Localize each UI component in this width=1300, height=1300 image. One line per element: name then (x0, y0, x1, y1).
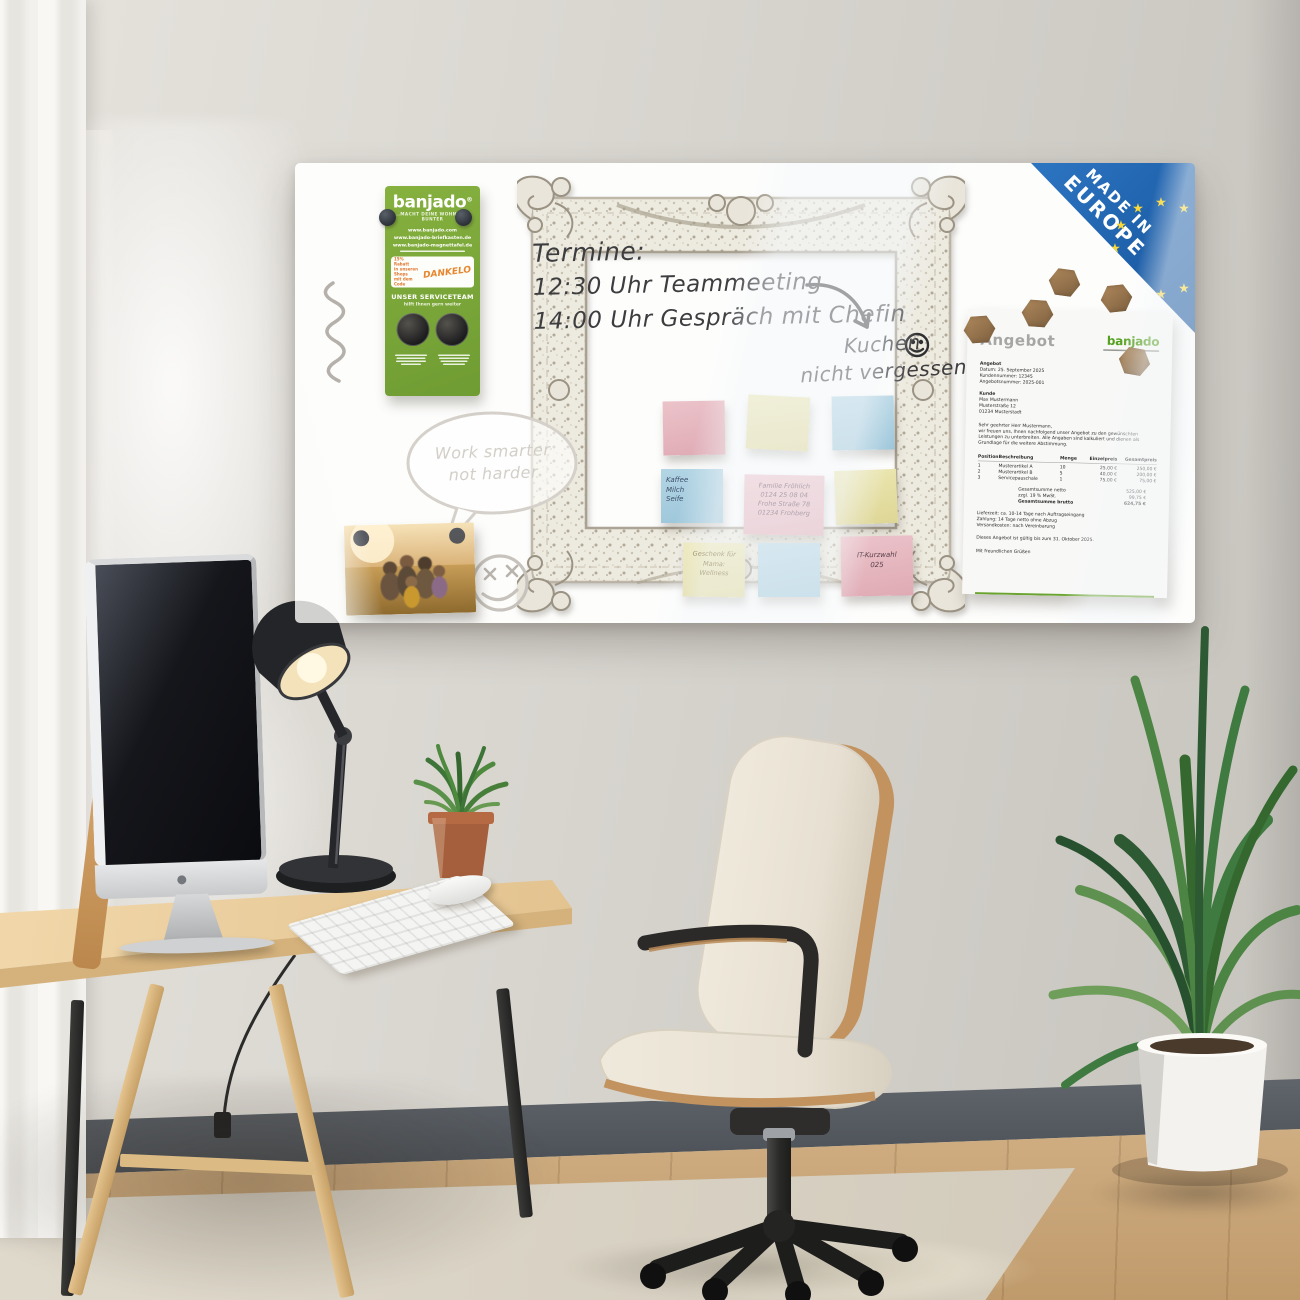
eu-star-icon: ★ (1132, 202, 1144, 217)
magnetic-glass-board: Termine: 12:30 Uhr Teammeeting 14:00 Uhr… (295, 163, 1195, 623)
sticky-note-blank (834, 469, 898, 525)
eu-star-icon: ★ (1178, 282, 1190, 297)
speech-bubble-text: Work smarter not harder (422, 439, 563, 488)
potted-plant-large (1005, 540, 1300, 1205)
badge-text: MADE IN EUROPE (1045, 163, 1179, 276)
fine-print-bar (400, 251, 465, 253)
document-validity: Dieses Angebot ist gültig bis zum 31. Ok… (976, 535, 1155, 545)
coupon-code: DANKELO (422, 264, 471, 280)
office-chair (545, 728, 945, 1300)
document-closing: Mit freundlichen Grüßen (976, 548, 1155, 558)
dog-photo (397, 313, 430, 346)
squiggle-doodle (325, 283, 344, 381)
eu-star-icon: ★ (1132, 282, 1144, 297)
family-photo (344, 522, 476, 615)
hexagon-magnet (1046, 266, 1083, 299)
hexagon-magnet (1099, 282, 1135, 314)
eu-star-icon: ★ (1109, 242, 1121, 257)
coupon-text: 15% Rabatt in unseren Shops mit dem Code (394, 257, 420, 287)
sticky-note-blank (758, 543, 820, 597)
document-totals: Gesamtsumme netto525,00 € zzgl. 19 % MwS… (977, 486, 1156, 508)
document-table: Position Beschreibung Menge Einzelpreis … (977, 454, 1157, 485)
document-intro: Sehr geehrter Herr Mustermann, wir freue… (978, 423, 1157, 450)
document-customer: Kunde Max Mustermann Musterstraße 12 012… (979, 391, 1158, 419)
magnet (455, 209, 472, 226)
discount-coupon: 15% Rabatt in unseren Shops mit dem Code… (391, 257, 474, 288)
dog-photo (436, 313, 469, 346)
flyer-url: www.banjado.com (389, 227, 476, 235)
sticky-note-address: Familie Fröhlich0124 25 08 04 Frohe Stra… (743, 474, 824, 535)
flyer-url: www.banjado-magnettafel.de (389, 242, 476, 250)
home-office-scene: Termine: 12:30 Uhr Teammeeting 14:00 Uhr… (0, 0, 1300, 1300)
magnet (379, 209, 396, 226)
flyer-url: www.banjado-briefkasten.de (389, 234, 476, 242)
sticky-note-it: IT-Kurzwahl025 (840, 535, 913, 596)
sticky-note-blank (832, 395, 895, 450)
flyer-contact-columns (389, 353, 476, 367)
sticky-note-shopping: KaffeeMilchSeife (661, 469, 723, 523)
eu-star-icon: ★ (1155, 196, 1167, 211)
desk-lamp (238, 568, 413, 903)
document-terms: Lieferzeit: ca. 10-14 Tage nach Auftrags… (976, 510, 1155, 532)
sticky-note-blank (663, 400, 726, 455)
eu-star-icon: ★ (1178, 202, 1190, 217)
monitor-base (119, 935, 274, 955)
apple-logo-icon (177, 875, 186, 884)
eu-star-icon: ★ (1115, 219, 1127, 234)
handwritten-cake-reminder: Kuchen nicht vergessen (792, 326, 975, 389)
service-dog-photos (389, 313, 476, 346)
eu-star-icon: ★ (1115, 265, 1127, 280)
eu-star-icon: ★ (1155, 288, 1167, 303)
sticky-note-gift: Geschenk fürMama:Wellness (683, 542, 746, 597)
service-team-title: UNSER SERVICETEAM (389, 294, 476, 302)
flyer-urls: www.banjado.com www.banjado-briefkasten.… (389, 227, 476, 250)
monitor-stand (152, 893, 234, 944)
potted-plant-small (398, 732, 523, 887)
sticky-note-blank (746, 394, 811, 451)
service-team-subtitle: hilft Ihnen gern weiter (389, 302, 476, 307)
handwritten-appointments: Termine: 12:30 Uhr Teammeeting 14:00 Uhr… (532, 229, 906, 339)
